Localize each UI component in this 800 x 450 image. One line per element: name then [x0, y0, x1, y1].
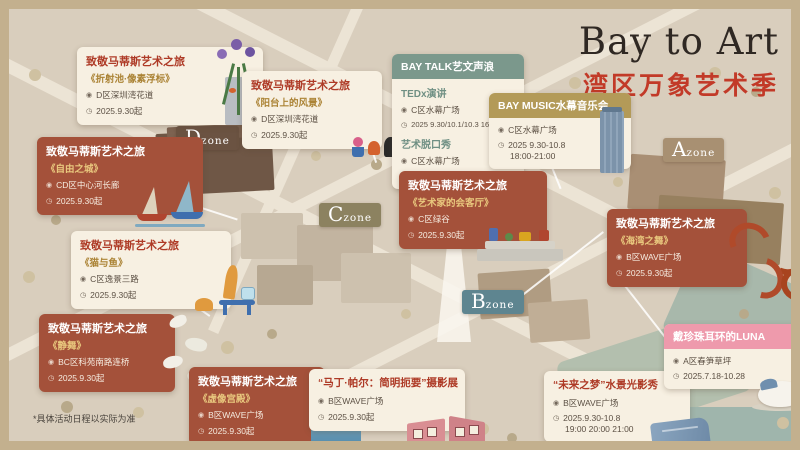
event-card-artists-lounge[interactable]: 致敬马蒂斯艺术之旅 《艺术家的会客厅》 ◉C区绿谷 ◷2025.9.30起 — [399, 171, 547, 249]
poster-map: Dzone Czone Bzone Azone Bay to Art 湾区万象艺… — [0, 0, 800, 450]
location-icon: ◉ — [318, 397, 324, 405]
event-location: B区WAVE广场 — [626, 251, 681, 263]
zone-label-a: Azone — [663, 138, 724, 162]
event-card-balcony-view[interactable]: 致敬马蒂斯艺术之旅 《阳台上的风景》 ◉D区深圳湾花道 ◷2025.9.30起 — [242, 71, 382, 149]
event-location: C区水幕广场 — [508, 124, 557, 136]
session-date: 2025 9.30/10.1/10.3 16:00 — [411, 120, 500, 129]
location-icon: ◉ — [498, 126, 504, 134]
zone-word: zone — [486, 299, 515, 311]
event-date: 2025.9.30起 — [90, 289, 136, 301]
event-title: 致敬马蒂斯艺术之旅 — [48, 322, 166, 336]
photo-gallery-illustration — [407, 411, 487, 450]
zone-word: zone — [201, 135, 230, 147]
event-title: 致敬马蒂斯艺术之旅 — [616, 217, 738, 231]
tree — [267, 329, 277, 339]
water-screen-illustration — [652, 420, 710, 450]
event-subtitle: 《艺术家的会客厅》 — [408, 195, 538, 209]
event-location: D区深圳湾花道 — [96, 89, 153, 101]
event-date: 2025.9.30起 — [626, 267, 672, 279]
zone-word: zone — [343, 212, 372, 224]
event-card-still-dance[interactable]: 致敬马蒂斯艺术之旅 《静舞》 ◉BC区科苑南路连桥 ◷2025.9.30起 — [39, 314, 175, 392]
zone-label-b: Bzone — [462, 290, 524, 314]
tower-illustration — [600, 111, 624, 173]
event-date: 2025.9.30-10.8 — [563, 413, 620, 423]
event-title: 致敬马蒂斯艺术之旅 — [80, 239, 222, 253]
event-time: 19:00 20:00 21:00 — [565, 424, 634, 434]
tree — [311, 151, 321, 161]
zone-letter: A — [672, 137, 686, 161]
tree — [769, 187, 781, 199]
calendar-icon: ◷ — [80, 291, 86, 299]
building-b — [528, 299, 591, 343]
location-icon: ◉ — [401, 106, 407, 114]
calendar-icon: ◷ — [616, 269, 622, 277]
event-header: BAY TALK艺文声浪 — [392, 54, 524, 79]
location-icon: ◉ — [401, 157, 407, 165]
location-icon: ◉ — [198, 411, 204, 419]
event-card-reflection-pool[interactable]: 致敬马蒂斯艺术之旅 《折射池·像素浮标》 ◉D区深圳湾花道 ◷2025.9.30… — [77, 47, 263, 125]
event-date: 2025.9.30起 — [261, 129, 307, 141]
event-title: 致敬马蒂斯艺术之旅 — [251, 79, 373, 93]
event-card-luna[interactable]: 戴珍珠耳环的LUNA ◉A区春笋草坪 ◷2025.7.18-10.28 — [664, 324, 800, 389]
event-location: BC区科苑南路连桥 — [58, 356, 129, 368]
event-location: A区春笋草坪 — [683, 355, 731, 367]
event-title: 致敬马蒂斯艺术之旅 — [198, 375, 316, 389]
matisse-dancers-illustration — [725, 217, 800, 297]
event-title: 致敬马蒂斯艺术之旅 — [408, 179, 538, 193]
event-card-virtual-palace[interactable]: 致敬马蒂斯艺术之旅 《虚像宫殿》 ◉B区WAVE广场 ◷2025.9.30起 — [189, 367, 325, 445]
tree — [221, 341, 234, 354]
location-icon: ◉ — [86, 91, 92, 99]
event-subtitle: 《静舞》 — [48, 338, 166, 352]
tree — [613, 177, 623, 187]
event-location: B区WAVE广场 — [208, 409, 263, 421]
zone-label-c: Czone — [319, 203, 381, 227]
zone-letter: C — [328, 202, 343, 226]
event-date: 2025.9.30起 — [418, 229, 464, 241]
building-c — [341, 253, 411, 303]
location-icon: ◉ — [46, 181, 52, 189]
calendar-icon: ◷ — [46, 197, 52, 205]
calendar-icon: ◷ — [198, 427, 204, 435]
event-date: 2025.9.30起 — [58, 372, 104, 384]
tree — [777, 417, 789, 429]
event-card-free-city[interactable]: 致敬马蒂斯艺术之旅 《自由之城》 ◉CD区中心河长廊 ◷2025.9.30起 — [37, 137, 203, 215]
calendar-icon: ◷ — [498, 141, 504, 149]
session-location: C区水幕广场 — [411, 104, 460, 116]
event-date: 2025.9.30起 — [208, 425, 254, 437]
connector-line — [622, 282, 666, 338]
calendar-icon: ◷ — [86, 107, 92, 115]
tree — [739, 309, 749, 319]
calendar-icon: ◷ — [401, 121, 407, 129]
event-location: D区深圳湾花道 — [261, 113, 318, 125]
location-icon: ◉ — [616, 253, 622, 261]
building-c — [241, 213, 303, 259]
poster-title: Bay to Art 湾区万象艺术季 — [579, 23, 779, 102]
location-icon: ◉ — [80, 275, 86, 283]
event-card-martin-parr-expo[interactable]: “马丁·帕尔：简明扼要”摄影展 ◉B区WAVE广场 ◷2025.9.30起 — [309, 369, 465, 431]
zone-letter: B — [471, 289, 486, 313]
location-icon: ◉ — [673, 357, 679, 365]
event-date: 2025.9.30起 — [56, 195, 102, 207]
event-header: 戴珍珠耳环的LUNA — [664, 324, 800, 349]
event-date: 2025.9.30起 — [328, 411, 374, 423]
event-location: CD区中心河长廊 — [56, 179, 119, 191]
event-title: “马丁·帕尔：简明扼要”摄影展 — [318, 377, 456, 391]
calendar-icon: ◷ — [48, 374, 54, 382]
calendar-icon: ◷ — [553, 414, 559, 422]
tree — [507, 433, 517, 443]
event-subtitle: 《自由之城》 — [46, 161, 194, 175]
event-location: B区WAVE广场 — [328, 395, 383, 407]
event-location: B区WAVE广场 — [563, 397, 618, 409]
event-date: 2025 9.30-10.8 — [508, 140, 565, 150]
event-subtitle: 《海湾之舞》 — [616, 233, 738, 247]
location-icon: ◉ — [251, 115, 257, 123]
footnote: *具体活动日程以实际为准 — [33, 412, 136, 425]
location-icon: ◉ — [408, 215, 414, 223]
tree — [51, 215, 61, 225]
event-date: 2025.7.18-10.28 — [683, 371, 745, 381]
event-time: 18:00-21:00 — [510, 151, 555, 161]
event-card-bay-dance[interactable]: 致敬马蒂斯艺术之旅 《海湾之舞》 ◉B区WAVE广场 ◷2025.9.30起 — [607, 209, 747, 287]
furniture-steps-illustration — [477, 225, 563, 261]
event-subtitle: 《虚像宫殿》 — [198, 391, 316, 405]
sailboats-illustration — [135, 175, 209, 229]
location-icon: ◉ — [48, 358, 54, 366]
session-location: C区水幕广场 — [411, 155, 460, 167]
calendar-icon: ◷ — [673, 372, 679, 380]
zone-word: zone — [686, 147, 715, 159]
event-card-bay-music[interactable]: BAY MUSIC水幕音乐会 ◉C区水幕广场 ◷2025 9.30-10.8 1… — [489, 93, 631, 169]
event-title: 致敬马蒂斯艺术之旅 — [46, 145, 194, 159]
cats-fishbowl-illustration — [195, 255, 265, 315]
luna-cat-illustration — [750, 371, 800, 411]
event-location: C区绿谷 — [418, 213, 450, 225]
event-location: C区逸景三路 — [90, 273, 139, 285]
calendar-icon: ◷ — [318, 413, 324, 421]
tree — [401, 309, 411, 319]
title-english: Bay to Art — [579, 23, 779, 62]
location-icon: ◉ — [553, 399, 559, 407]
calendar-icon: ◷ — [251, 131, 257, 139]
building-c — [257, 265, 313, 305]
tree — [29, 69, 41, 81]
tree — [23, 271, 35, 283]
event-card-cat-and-fish[interactable]: 致敬马蒂斯艺术之旅 《猫与鱼》 ◉C区逸景三路 ◷2025.9.30起 — [71, 231, 231, 309]
event-date: 2025.9.30起 — [96, 105, 142, 117]
calendar-icon: ◷ — [408, 231, 414, 239]
event-title: “未来之梦”水景光影秀 — [553, 379, 681, 393]
